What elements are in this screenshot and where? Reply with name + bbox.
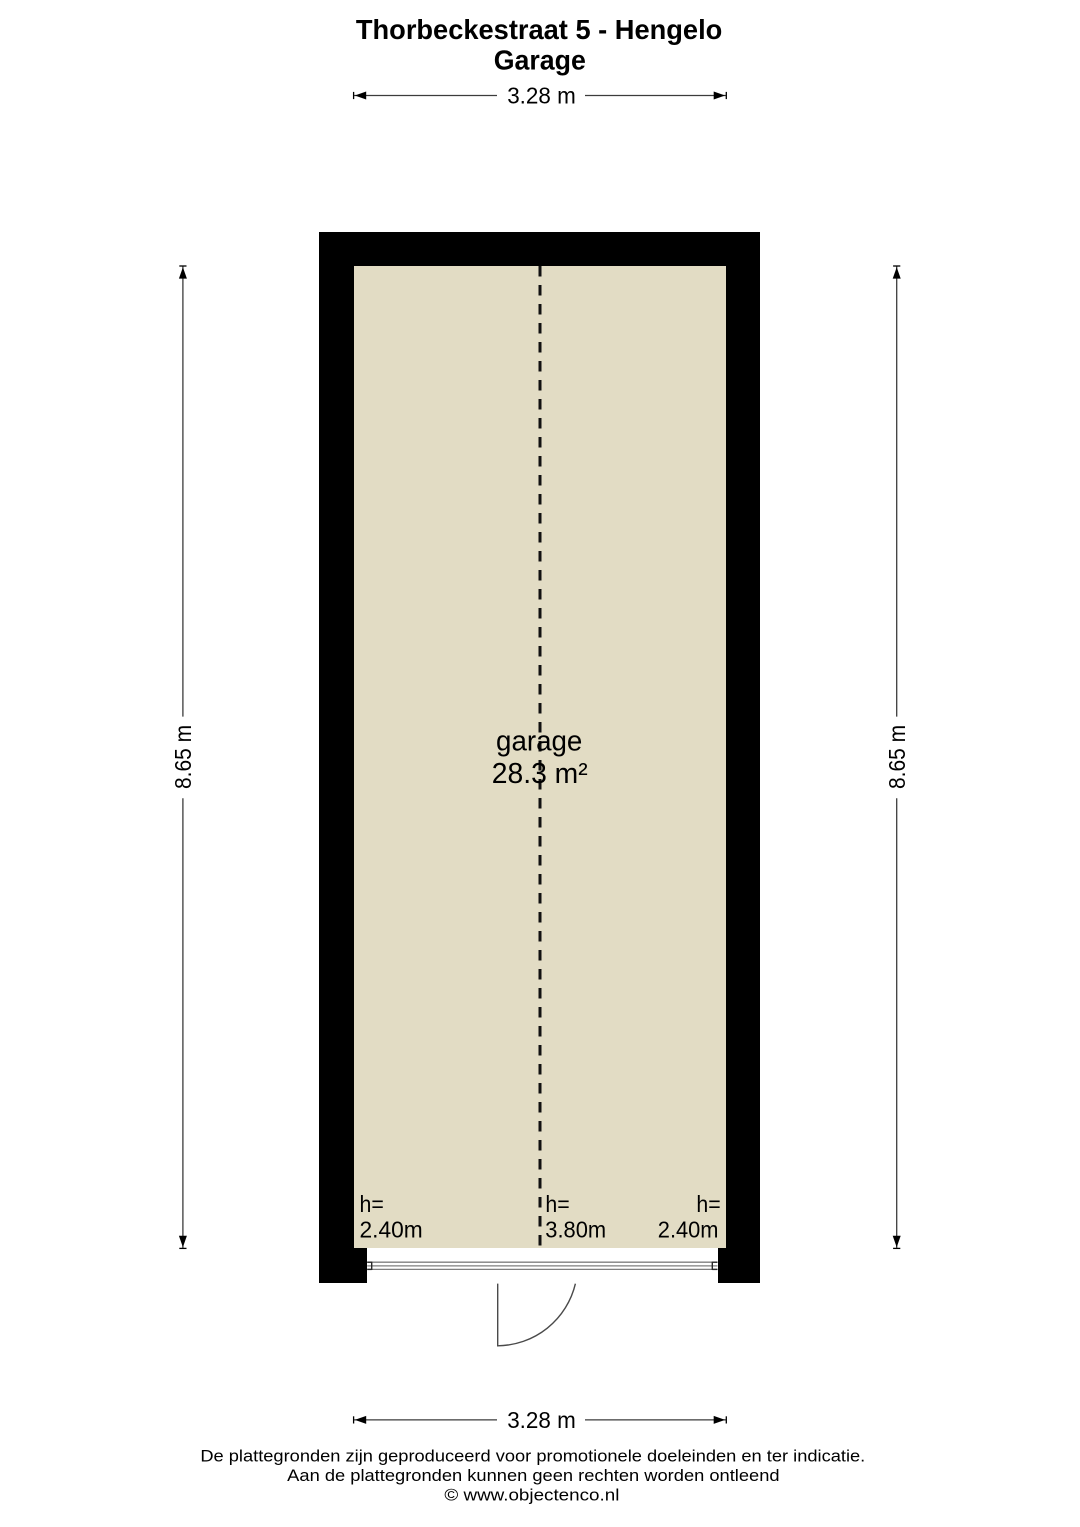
svg-text:garage: garage [496, 726, 582, 758]
svg-text:28.3 m²: 28.3 m² [492, 758, 588, 790]
svg-text:© www.objectenco.nl: © www.objectenco.nl [444, 1487, 619, 1505]
svg-text:8.65 m: 8.65 m [170, 725, 196, 789]
svg-text:h=: h= [545, 1191, 569, 1217]
svg-text:3.28 m: 3.28 m [507, 83, 576, 109]
svg-text:h=: h= [360, 1191, 384, 1217]
svg-text:3.80m: 3.80m [545, 1217, 606, 1243]
svg-text:Thorbeckestraat 5 - Hengelo: Thorbeckestraat 5 - Hengelo [356, 14, 722, 45]
svg-text:2.40m: 2.40m [360, 1217, 423, 1243]
svg-text:De plattegronden zijn geproduc: De plattegronden zijn geproduceerd voor … [200, 1448, 865, 1466]
svg-text:3.28 m: 3.28 m [507, 1407, 576, 1433]
svg-text:2.40m: 2.40m [658, 1217, 719, 1243]
svg-text:Garage: Garage [494, 45, 586, 76]
svg-text:Aan de plattegronden kunnen ge: Aan de plattegronden kunnen geen rechten… [287, 1467, 779, 1485]
svg-text:h=: h= [696, 1191, 720, 1217]
svg-text:8.65 m: 8.65 m [884, 725, 910, 789]
